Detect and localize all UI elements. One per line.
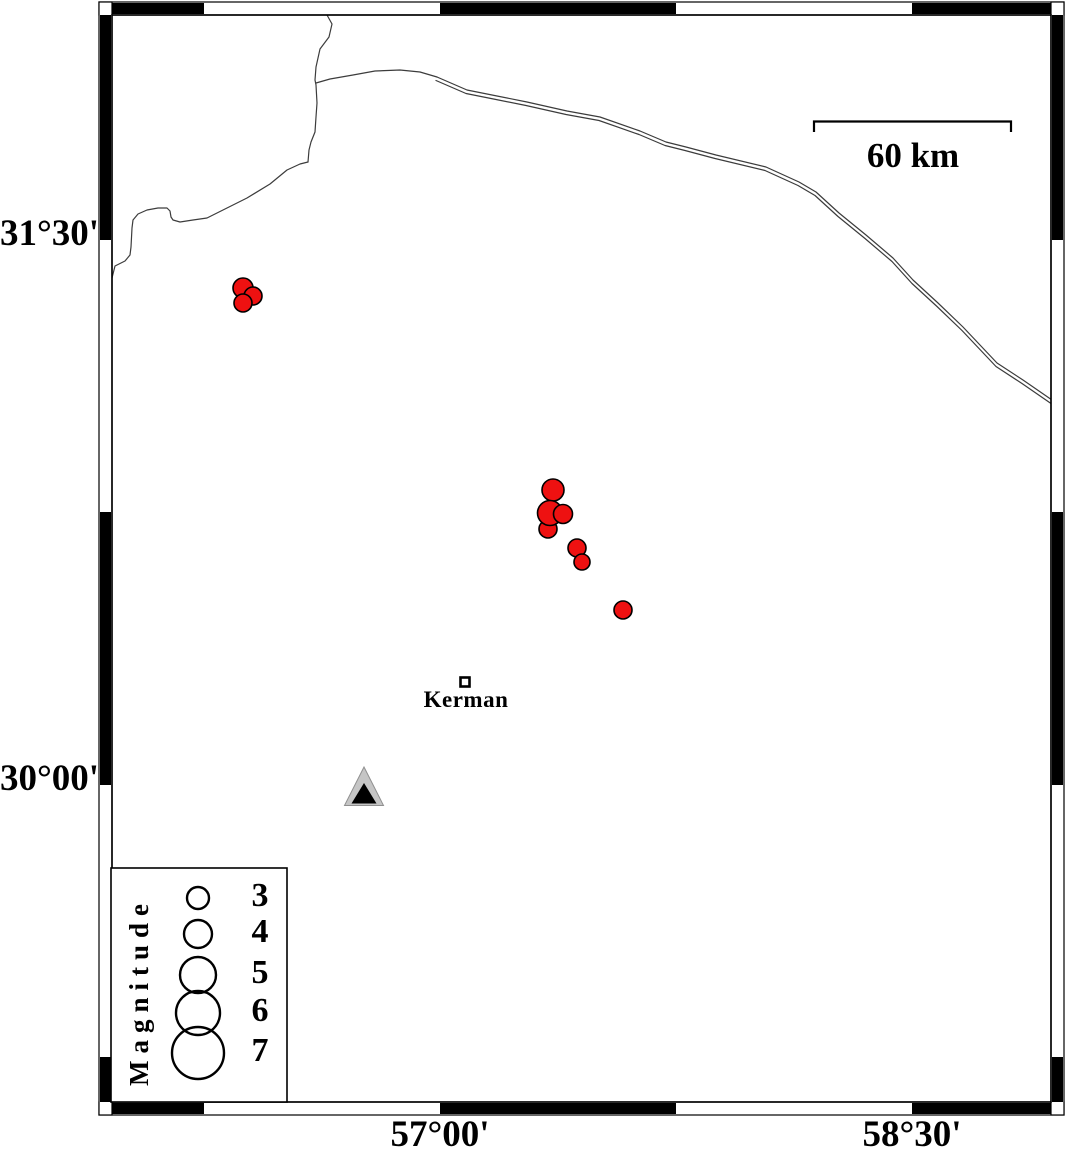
- boundary-lines: [112, 15, 1052, 404]
- boundary-line-west: [112, 162, 308, 278]
- legend-magnitude-label-4: 4: [238, 915, 282, 949]
- city-square-marker: [461, 678, 470, 687]
- legend-magnitude-label-5: 5: [238, 956, 282, 990]
- road-line-single: [316, 70, 437, 83]
- axis-label-lat-3130: 31°30': [0, 215, 95, 254]
- station-triangle: [345, 767, 384, 806]
- road-line-upper: [437, 77, 1052, 400]
- seismicity-map-figure: 31°30' 30°00' 57°00' 58°30' 60 km Kerman…: [0, 0, 1066, 1152]
- road-line-lower: [436, 81, 1051, 404]
- axis-label-lon-5700: 57°00': [350, 1116, 530, 1152]
- epicenter-marker: [574, 554, 590, 570]
- epicenter-marker: [542, 479, 564, 501]
- city-label: Kerman: [391, 688, 541, 712]
- axis-label-lat-3000: 30°00': [0, 760, 95, 799]
- epicenter-marker: [234, 294, 252, 312]
- epicenter-markers: [233, 278, 632, 619]
- legend-magnitude-label-6: 6: [238, 994, 282, 1028]
- legend-magnitude-label-3: 3: [238, 879, 282, 913]
- boundary-line-north: [308, 15, 332, 162]
- legend-magnitude-label-7: 7: [238, 1034, 282, 1068]
- epicenter-marker: [614, 601, 632, 619]
- epicenter-marker: [554, 505, 573, 524]
- axis-label-lon-5830: 58°30': [822, 1116, 1002, 1152]
- legend-title: Magnitude: [125, 897, 153, 1086]
- scale-bar-label: 60 km: [823, 138, 1003, 175]
- scale-bar: [814, 122, 1011, 133]
